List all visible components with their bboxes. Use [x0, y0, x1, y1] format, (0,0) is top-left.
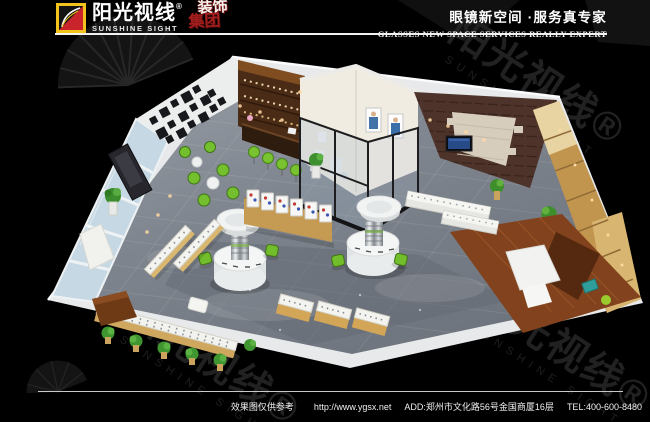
- footer: 效果图仅供参考 http://www.ygsx.net ADD:郑州市文化路56…: [231, 400, 642, 413]
- header-divider: [55, 33, 607, 35]
- website-url: http://www.ygsx.net: [314, 402, 392, 412]
- footer-divider: [38, 391, 623, 392]
- floor-reflection: [375, 274, 485, 302]
- render-canvas: 阳光视线® SUNSHINE SIGHT 阳光视线® SUNSHINE SIGH…: [0, 0, 650, 422]
- group-wordmark: 装饰 集团: [187, 0, 228, 30]
- phone-text: TEL:400-600-8480: [567, 402, 642, 412]
- disclaimer-text: 效果图仅供参考: [231, 400, 294, 413]
- brand-name-en: SUNSHINE SIGHT: [92, 25, 183, 33]
- address-text: ADD:郑州市文化路56号金国商厦16层: [404, 400, 554, 413]
- wall-tv: [446, 136, 472, 151]
- slogan-cn: 眼镜新空间 ·服务真专家: [378, 6, 607, 26]
- registered-mark: ®: [176, 2, 183, 11]
- header: 阳光视线® SUNSHINE SIGHT 装饰 集团 眼镜新空间 ·服务真专家 …: [0, 0, 650, 38]
- flower: [247, 115, 253, 121]
- display-dome: [601, 295, 611, 305]
- sunshine-sight-logo-icon: [56, 3, 86, 33]
- promo-sheet: 阳光视线® SUNSHINE SIGHT 阳光视线® SUNSHINE SIGH…: [0, 0, 650, 422]
- brand-name-cn: 阳光视线®: [92, 3, 183, 23]
- brand-logo: 阳光视线® SUNSHINE SIGHT 装饰 集团: [56, 3, 228, 33]
